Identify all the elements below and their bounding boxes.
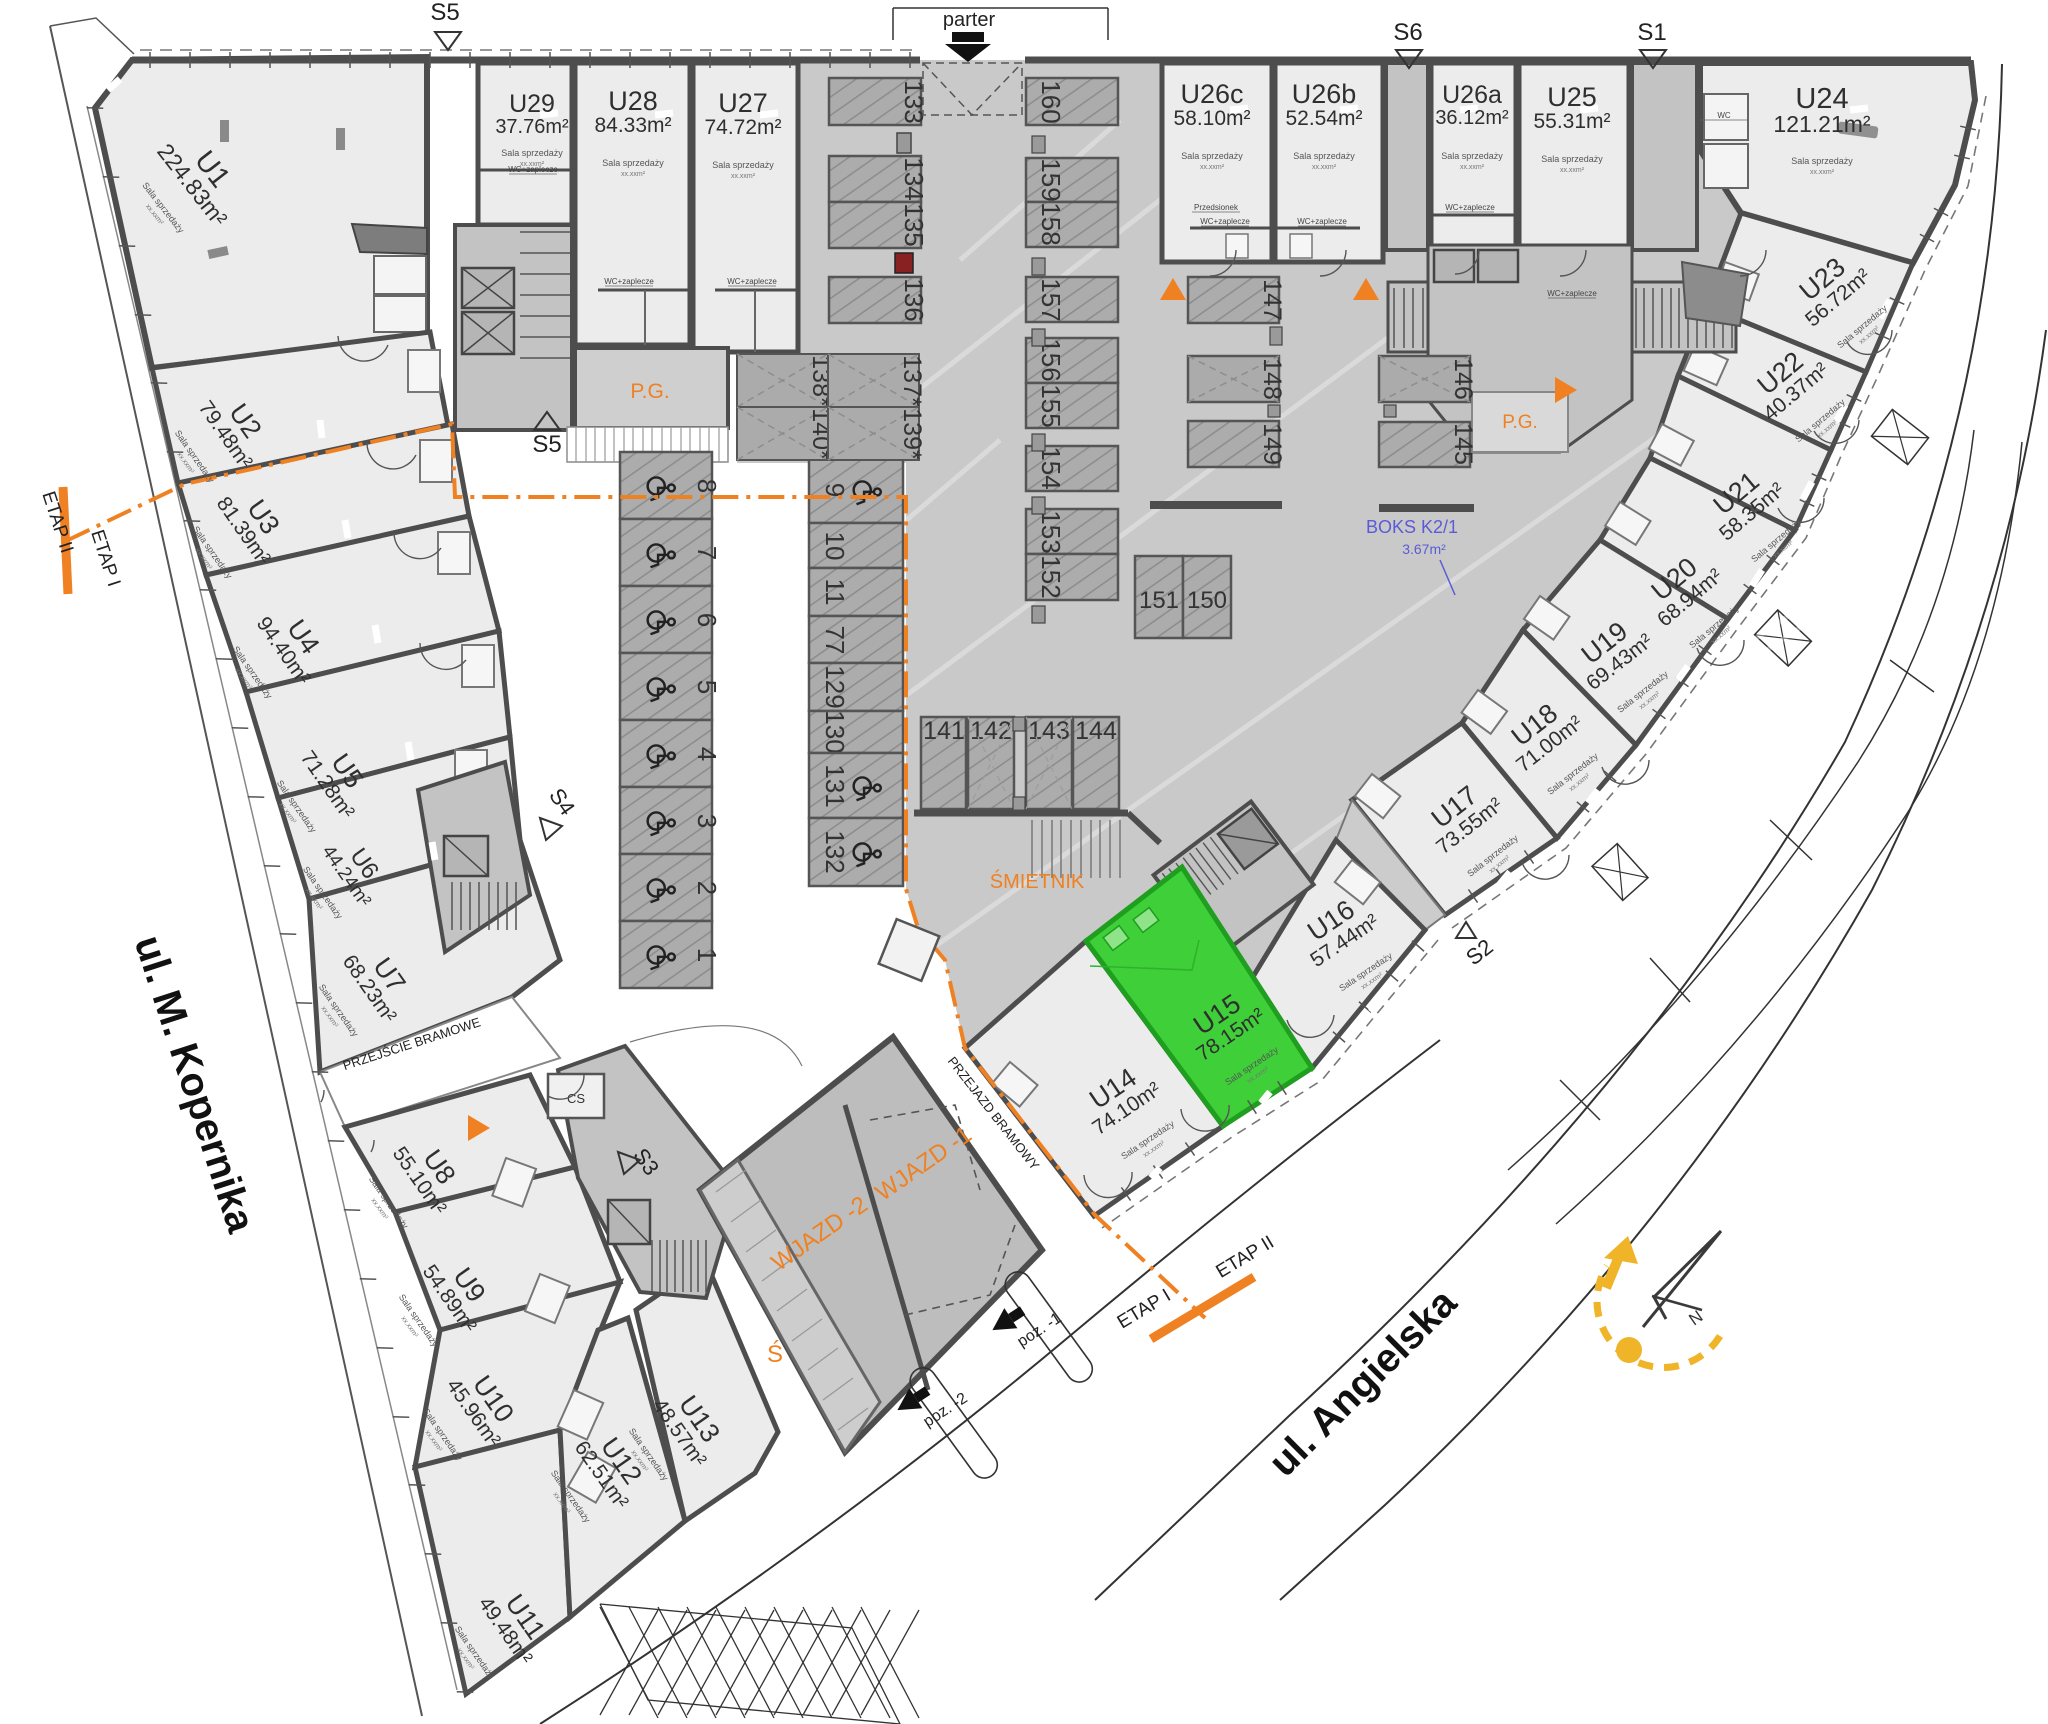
svg-text:7: 7 (692, 546, 722, 560)
svg-text:141: 141 (923, 717, 965, 745)
svg-text:5: 5 (692, 680, 722, 694)
svg-text:xx.xxm²: xx.xxm² (1460, 164, 1485, 171)
svg-text:152: 152 (1036, 555, 1066, 598)
svg-text:84.33m²: 84.33m² (594, 114, 671, 137)
svg-text:159: 159 (1036, 158, 1066, 201)
svg-text:WC+zaplecze: WC+zaplecze (727, 277, 777, 286)
svg-text:37.76m²: 37.76m² (495, 116, 569, 138)
svg-text:143: 143 (1028, 717, 1070, 745)
svg-text:77: 77 (820, 626, 850, 655)
svg-text:146: 146 (1449, 358, 1477, 400)
svg-text:142: 142 (970, 717, 1012, 745)
svg-text:ŚMIETNIK: ŚMIETNIK (990, 869, 1085, 893)
svg-text:145: 145 (1449, 423, 1477, 465)
svg-text:151: 151 (1139, 587, 1179, 614)
svg-text:4: 4 (692, 747, 722, 761)
svg-text:3.67m²: 3.67m² (1402, 541, 1446, 557)
svg-text:S5: S5 (532, 431, 561, 458)
svg-text:130: 130 (820, 710, 850, 753)
svg-text:153: 153 (1036, 510, 1066, 553)
svg-text:U27: U27 (718, 88, 768, 118)
svg-text:Sala sprzedaży: Sala sprzedaży (501, 148, 563, 158)
svg-text:157: 157 (1036, 278, 1066, 321)
svg-text:131: 131 (820, 764, 850, 807)
svg-text:158: 158 (1036, 202, 1066, 245)
svg-text:P.G.: P.G. (1502, 412, 1538, 433)
svg-text:xx.xxm²: xx.xxm² (1560, 167, 1585, 174)
svg-text:xx.xxm²: xx.xxm² (1312, 164, 1337, 171)
svg-text:Sala sprzedaży: Sala sprzedaży (1791, 156, 1853, 166)
svg-text:121.21m²: 121.21m² (1773, 111, 1871, 137)
svg-text:2: 2 (692, 881, 722, 895)
svg-text:52.54m²: 52.54m² (1285, 107, 1362, 130)
svg-text:137*: 137* (898, 355, 926, 407)
svg-text:WC: WC (1717, 111, 1731, 120)
svg-text:144: 144 (1075, 717, 1117, 745)
svg-text:133: 133 (899, 80, 929, 123)
svg-text:WC+zaplecze: WC+zaplecze (508, 165, 558, 174)
svg-text:1: 1 (692, 948, 722, 962)
svg-text:U29: U29 (509, 90, 555, 118)
svg-text:3: 3 (692, 814, 722, 828)
svg-text:Sala sprzedaży: Sala sprzedaży (1541, 154, 1603, 164)
svg-text:155: 155 (1036, 384, 1066, 427)
svg-text:10: 10 (820, 532, 850, 561)
svg-text:148: 148 (1258, 358, 1286, 400)
svg-text:Ś: Ś (767, 1340, 783, 1368)
svg-text:6: 6 (692, 613, 722, 627)
svg-text:150: 150 (1187, 587, 1227, 614)
svg-text:8: 8 (692, 479, 722, 493)
svg-text:U25: U25 (1547, 82, 1597, 112)
svg-text:55.31m²: 55.31m² (1533, 110, 1610, 133)
svg-text:160: 160 (1036, 80, 1066, 123)
svg-text:WC+zaplecze: WC+zaplecze (1297, 217, 1347, 226)
svg-text:xx.xxm²: xx.xxm² (621, 171, 646, 178)
svg-text:129: 129 (820, 665, 850, 708)
svg-text:132: 132 (820, 830, 850, 873)
svg-text:WC+zaplecze: WC+zaplecze (1547, 289, 1597, 298)
svg-text:Sala sprzedaży: Sala sprzedaży (1441, 151, 1503, 161)
svg-text:11: 11 (820, 579, 850, 606)
svg-text:WC+zaplecze: WC+zaplecze (1445, 203, 1495, 212)
svg-text:U26a: U26a (1442, 81, 1502, 109)
svg-text:xx.xxm²: xx.xxm² (1810, 169, 1835, 176)
svg-text:134: 134 (899, 157, 929, 200)
svg-text:U26b: U26b (1292, 79, 1357, 109)
svg-text:S6: S6 (1393, 19, 1422, 46)
svg-text:U28: U28 (608, 86, 658, 116)
svg-text:36.12m²: 36.12m² (1435, 107, 1509, 129)
svg-text:Sala sprzedaży: Sala sprzedaży (602, 158, 664, 168)
svg-text:149: 149 (1258, 423, 1286, 465)
svg-text:154: 154 (1036, 446, 1066, 489)
svg-text:BOKS K2/1: BOKS K2/1 (1366, 517, 1458, 537)
svg-text:WC+zaplecze: WC+zaplecze (1200, 217, 1250, 226)
svg-text:S1: S1 (1637, 19, 1666, 46)
svg-text:xx.xxm²: xx.xxm² (731, 173, 756, 180)
svg-text:74.72m²: 74.72m² (704, 116, 781, 139)
svg-text:Przedsionek: Przedsionek (1194, 203, 1239, 212)
svg-text:Sala sprzedaży: Sala sprzedaży (1293, 151, 1355, 161)
svg-text:P.G.: P.G. (630, 380, 669, 403)
svg-text:parter: parter (943, 9, 996, 31)
svg-text:WC+zaplecze: WC+zaplecze (604, 277, 654, 286)
svg-text:Sala sprzedaży: Sala sprzedaży (712, 160, 774, 170)
svg-text:139*: 139* (898, 408, 926, 460)
svg-text:U26c: U26c (1180, 79, 1243, 109)
svg-text:xx.xxm²: xx.xxm² (1200, 164, 1225, 171)
svg-text:136: 136 (899, 278, 929, 321)
svg-text:135: 135 (899, 203, 929, 246)
svg-text:58.10m²: 58.10m² (1173, 107, 1250, 130)
svg-text:S5: S5 (430, 0, 459, 26)
svg-text:Sala sprzedaży: Sala sprzedaży (1181, 151, 1243, 161)
svg-text:147: 147 (1258, 279, 1286, 321)
